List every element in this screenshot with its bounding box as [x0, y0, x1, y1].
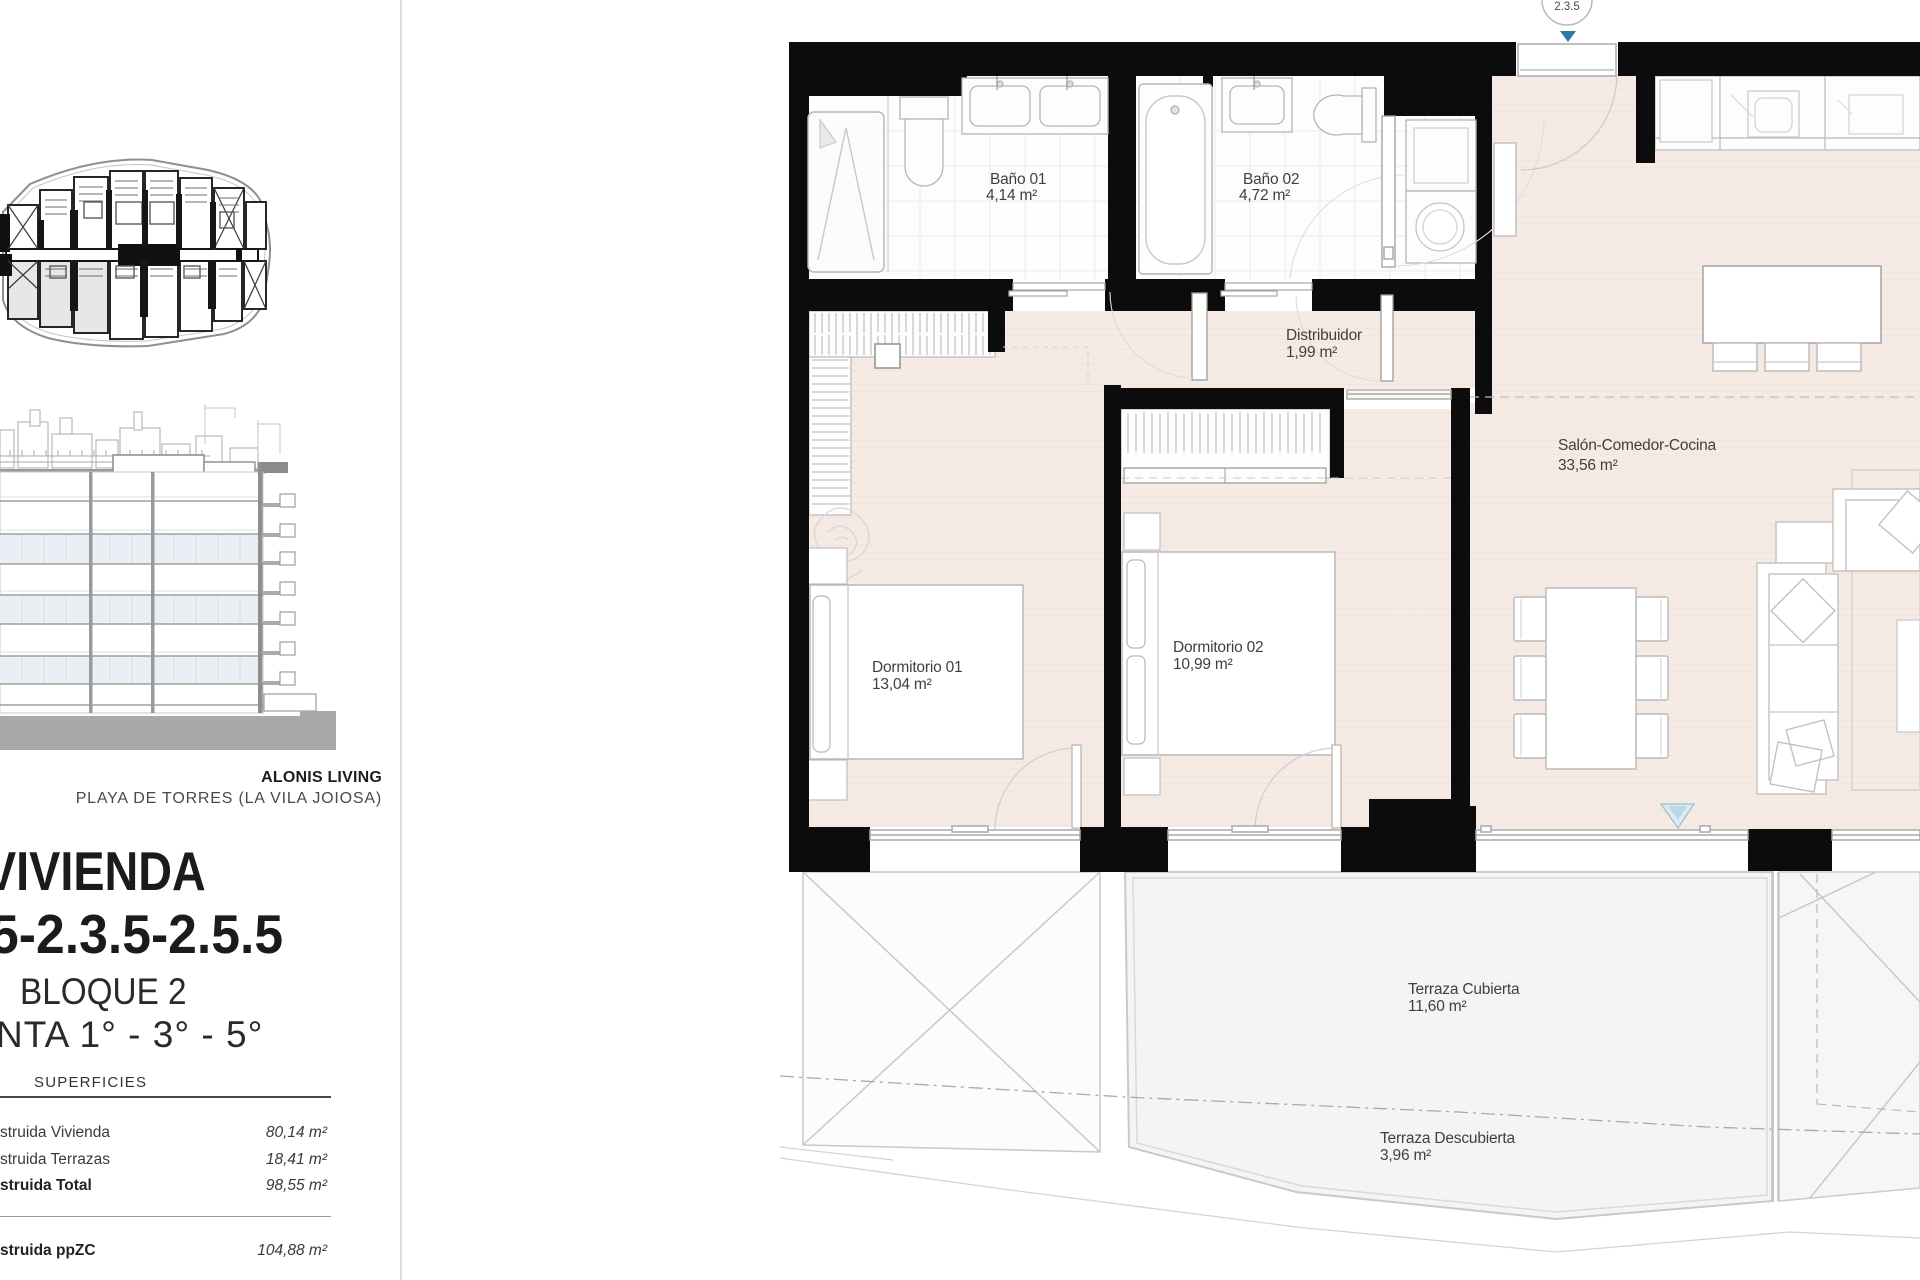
svg-text:3,96 m²: 3,96 m² [1380, 1147, 1431, 1164]
svg-text:2.3.5: 2.3.5 [1554, 1, 1580, 13]
svg-text:13,04 m²: 13,04 m² [872, 676, 932, 693]
svg-text:Terraza Cubierta: Terraza Cubierta [1408, 981, 1520, 998]
svg-text:Baño 02: Baño 02 [1243, 171, 1299, 188]
svg-text:11,60 m²: 11,60 m² [1408, 998, 1466, 1015]
svg-text:10,99 m²: 10,99 m² [1173, 656, 1233, 673]
svg-text:33,56 m²: 33,56 m² [1558, 457, 1618, 474]
svg-text:4,72 m²: 4,72 m² [1239, 187, 1290, 204]
svg-text:Distribuidor: Distribuidor [1286, 327, 1362, 344]
svg-text:Dormitorio 01: Dormitorio 01 [872, 659, 962, 676]
svg-text:TIES: TIES [1358, 681, 1439, 708]
svg-text:1,99 m²: 1,99 m² [1286, 344, 1337, 361]
svg-text:Baño 01: Baño 01 [990, 171, 1046, 188]
svg-text:Dormitorio 02: Dormitorio 02 [1173, 639, 1263, 656]
svg-text:4,14 m²: 4,14 m² [986, 187, 1037, 204]
svg-text:Salón-Comedor-Cocina: Salón-Comedor-Cocina [1558, 437, 1717, 454]
svg-text:Terraza Descubierta: Terraza Descubierta [1380, 1130, 1515, 1147]
